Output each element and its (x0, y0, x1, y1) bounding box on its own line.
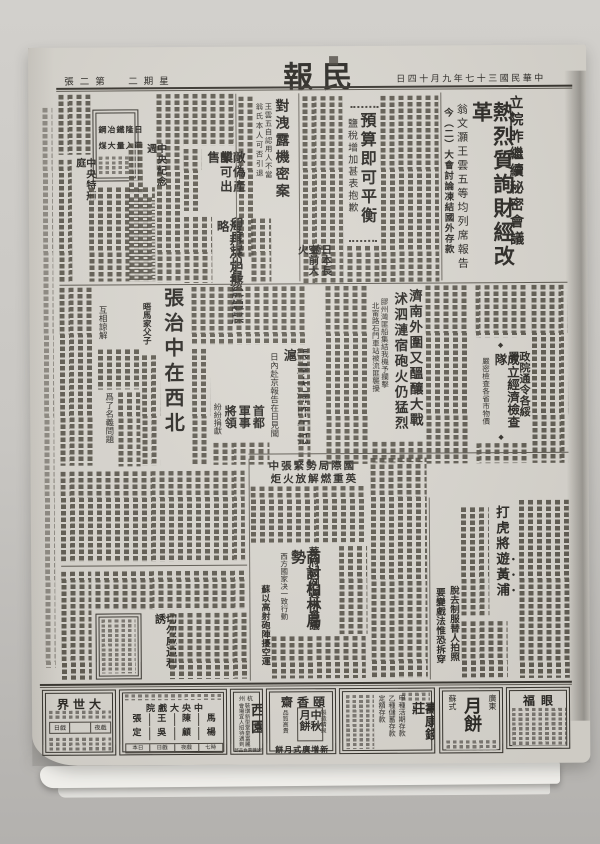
thanks-notice-box (95, 613, 141, 679)
lowerleft-body-columns (61, 471, 246, 562)
ad-dashijie-cell (70, 723, 90, 733)
zhang-body-columns (59, 288, 95, 466)
berlin-side-headline: 蘇以高射砲陣擾空運 (259, 585, 269, 677)
rule-lowerleft-split (61, 565, 247, 567)
steel-ad-line-1: 日隆鐵冶鋼 (98, 124, 143, 135)
ad-shoukang: 壽康錢莊 甲種活期存款 乙種儲蓄存款 定額存款 (339, 688, 435, 755)
enemy-body-columns (184, 149, 202, 211)
showtime-label: 夜戲 (175, 744, 199, 752)
berlin-body-columns-2 (339, 546, 368, 634)
ad-central-showtimes: 本日 日戲 夜戲 七時 (125, 743, 223, 754)
leak-headline: 對洩露機密案 (274, 98, 289, 210)
tiger-body-columns-mid (461, 507, 490, 615)
tiger-headline-part-1: 打虎將 (493, 505, 509, 552)
zhang-headline: 張治中在西北 (162, 287, 183, 447)
court-body-columns (59, 160, 73, 282)
ad-xiyuan-line-2: 會場宜人招待週到 (237, 703, 243, 751)
ad-shoukang-service-2: 乙種儲蓄存款 (388, 695, 395, 749)
budget-deck: 鹽稅增加甚表抱歉 (345, 118, 356, 236)
capital-headline-2: 軍事 (238, 405, 250, 431)
ad-yixiangzhai-bottom: 新增廣式月餅 (275, 744, 329, 754)
newspaper-photo: 民報 中華民國三十七年九月十四日 星期二 第二張 立院昨繼續秘密會議 熱烈質詢財… (0, 0, 600, 844)
budget-ornament-bottom (349, 240, 377, 242)
ad-shoukang-address (346, 695, 374, 749)
ad-yixiangzhai: 頤香齋 製造精良 中秋月餅 品質高貴 新增廣式月餅 (266, 688, 336, 754)
budget-headline: 預算即可平衡 (358, 112, 375, 238)
nagasaki-headline-2: 空前大火 (297, 244, 318, 284)
lead-deck: 翁文灝王雲五等均列席報告 (456, 103, 468, 285)
econ-ornament-top: ◆ (498, 341, 503, 349)
ad-yixiangzhai-left: 品質高貴 (281, 709, 287, 737)
econ-headline: 成立經濟檢查隊 (493, 353, 518, 431)
performer: 楊 (199, 727, 223, 740)
capital-deck: 紛紛捐獻 (213, 403, 221, 439)
jinan-deck-1: 膠州灣匪船集結我機予攔擊 (381, 298, 389, 436)
performer: 王 (150, 713, 175, 726)
ad-mooncake-right-label: 廣東 (488, 694, 496, 716)
lead-body-columns (380, 95, 439, 281)
tiger-headline-part-2: 遊黃浦 (493, 552, 509, 599)
weekday: 星期二 (128, 73, 175, 87)
ad-mooncake-smallprint (446, 740, 498, 750)
ad-dashijie-label-day: 日戲 (50, 723, 70, 733)
budget-body-columns-2 (347, 246, 379, 282)
india-body-columns-2 (251, 219, 271, 283)
berlin-body-columns-3 (371, 458, 428, 678)
econ-ornament-bottom: ◆ (498, 433, 503, 441)
jinan-body-columns (325, 286, 368, 464)
zhang-body-columns-3 (118, 392, 140, 466)
ad-shoukang-service-3: 定額存款 (378, 695, 385, 749)
topleft-body-columns-4 (129, 197, 156, 281)
capital-headline-3: 將領 (224, 405, 236, 431)
lead-deck-2: 今（二）大會討論凍結國外存款 (442, 107, 453, 281)
ad-central-topline (125, 694, 223, 701)
intl-headline-2: 英重燃解放火炬 (271, 471, 359, 487)
ad-shoukang-name: 壽康錢莊 (410, 702, 435, 752)
newspaper-page: 民報 中華民國三十七年九月十四日 星期二 第二張 立院昨繼續秘密會議 熱烈質詢財… (28, 45, 590, 766)
zhang-body-columns-2 (98, 349, 140, 389)
ad-central-theatre: 中央大戲院 張 王 陳 馬 定 吳 顧 楊 本日 日戲 夜戲 七時 (119, 689, 227, 756)
showtime-label: 七時 (199, 744, 222, 752)
enemy-headline-2: 卽可出售 (206, 151, 231, 207)
ad-mooncake: 廣東 月餅 蘇式 (439, 687, 503, 753)
performer: 定 (125, 727, 150, 740)
showtime-label: 本日 (126, 744, 150, 752)
center-body-columns (191, 286, 307, 345)
econ-deck: 嚴密檢查各省市物價 (482, 357, 490, 425)
intl-body-columns (251, 486, 365, 543)
zhang-sub-2: 互相諒解 (98, 306, 107, 346)
jinan-deck-2: 北甯路石門車站被流匪襲擾 (372, 302, 380, 434)
jinan-headline-2: 沭泗漣宿砲火仍猛烈 (391, 292, 405, 440)
memorial-week-headline: 中央紀念週 (145, 143, 165, 193)
topleft-body-columns-2 (58, 95, 90, 155)
ad-dashijie-label-night: 夜戲 (91, 723, 110, 733)
jinan-body-columns-3 (425, 285, 470, 463)
jinan-headline-1: 濟南外圍又醞釀大戰 (406, 289, 420, 439)
right-margin-columns (531, 285, 568, 463)
ad-dashijie: 大世界 日戲 夜戲 (42, 689, 116, 755)
performer: 張 (125, 713, 150, 726)
budget-ornament-top (350, 106, 378, 108)
performer: 吳 (150, 727, 175, 740)
center-body-columns-4 (298, 348, 311, 462)
center-body-columns-2 (192, 349, 211, 465)
performer: 陳 (175, 713, 200, 726)
under-sheet-1 (40, 762, 560, 789)
capital-headline-1: 首都 (252, 405, 264, 431)
berlin-body-columns (272, 636, 366, 679)
ad-mooncake-name: 月餅 (462, 696, 480, 738)
lowerleft-body-columns-2 (61, 572, 92, 680)
enemy-body-columns-top (183, 94, 233, 146)
ad-yanfu-name: 眼福 (523, 692, 559, 709)
left-margin-columns (42, 108, 55, 668)
lowerleft-body-columns-3 (95, 571, 247, 610)
tiger-body-columns-right (519, 500, 570, 678)
tiger-body-columns-bottom (462, 621, 508, 677)
performer: 顧 (175, 727, 200, 740)
leak-deck: 王雲五自認用人不當 (264, 103, 272, 207)
tiger-sub-2: 要變戲法惟恐拆穿 (434, 587, 444, 677)
zhang-sub-1: 晤馬家父子 (142, 302, 151, 350)
india-body-columns (184, 217, 212, 283)
steel-ad-smallprint (99, 156, 133, 174)
ad-yixiangzhai-product: 中秋月餅 (297, 707, 323, 741)
ad-mooncake-left-label: 蘇式 (448, 694, 456, 716)
zhang-sub-3: 爲了名義問題 (104, 392, 113, 444)
leak-deck-2: 翁氏本人可否引退 (255, 103, 263, 207)
showtime-label: 日戲 (151, 744, 175, 752)
lead-headline: 熱烈質詢財經改革 (471, 101, 514, 289)
ad-xiyuan-line-3: 附設糖菓食品部 (234, 748, 263, 754)
berlin-headline: 商討柏林局勢 (290, 549, 321, 633)
ad-dashijie-smallprint (49, 738, 111, 752)
date-line: 中華民國三十七年九月十四日 (396, 71, 546, 85)
edition-label: 第二張 (64, 73, 111, 87)
ad-dashijie-line (49, 711, 111, 719)
ad-xiyuan-name: 西園 (250, 703, 263, 739)
zhangqun-deck: 日內赴京報告在日見聞 (269, 352, 278, 446)
ad-yanfu-body (512, 708, 566, 746)
ad-central-performers-row-2: 定 吳 顧 楊 (125, 727, 223, 741)
econ-body-columns-top (475, 285, 527, 337)
performer: 馬 (199, 713, 223, 726)
memorial-week-body (129, 143, 143, 193)
ad-xiyuan-city: 杭州 (239, 694, 255, 703)
rule-tiger-left (429, 498, 431, 680)
ad-yanfu: 眼福 (506, 687, 570, 749)
ad-shoukang-topline (402, 693, 430, 701)
ad-central-performers-row-1: 張 王 陳 馬 (125, 713, 223, 727)
tiger-headline: 打虎將遊黃浦 (493, 505, 519, 635)
ad-dashijie-schedule: 日戲 夜戲 (49, 722, 111, 734)
ad-shoukang-service-1: 甲種活期存款 (398, 695, 405, 749)
ad-xiyuan: 杭州 西園 裝璜新型堂皇富麗 會場宜人招待週到 附設糖菓食品部 (230, 689, 263, 755)
zhang-body-columns-4 (142, 355, 161, 465)
thanks-notice-text (101, 619, 135, 673)
tiger-sub-1: 脫去制服替人拍照 (448, 585, 458, 677)
berlin-deck: 西方國家决一致行動 (280, 552, 288, 626)
masthead-seal-icon (329, 56, 338, 65)
lowerleft-body-columns-4 (169, 613, 247, 679)
